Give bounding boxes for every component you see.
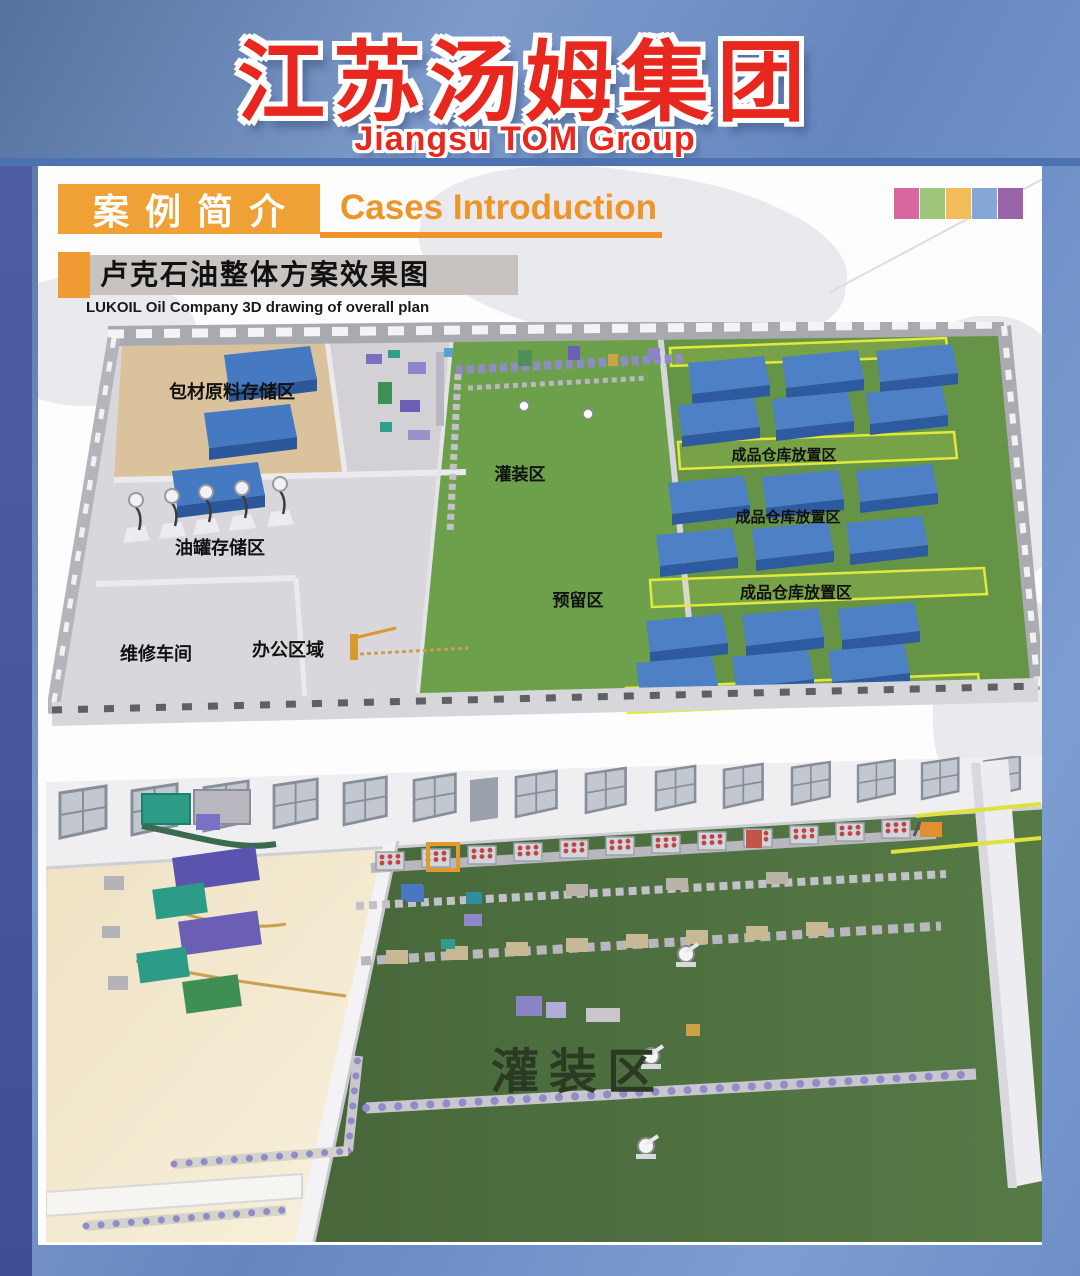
filling-area-render: 灌装区 (46, 756, 1042, 1242)
swatch-purple (998, 188, 1023, 219)
zone-label-filling: 灌装区 (495, 464, 546, 484)
zone-label-maintenance: 维修车间 (120, 643, 192, 664)
swatch-blue (972, 188, 997, 219)
zone-label-office: 办公区域 (252, 639, 324, 660)
zone-label-finished-1: 成品仓库放置区 (731, 446, 836, 464)
title-accent-square (58, 252, 90, 298)
case-title-zh: 卢克石油整体方案效果图 (90, 255, 518, 295)
swatch-orange (946, 188, 971, 219)
back-wall-door (470, 777, 498, 822)
case-title-en: LUKOIL Oil Company 3D drawing of overall… (86, 299, 429, 316)
red-palletizer (746, 830, 762, 848)
zone-label-finished-3: 成品仓库放置区 (740, 583, 852, 602)
left-edge-strip (0, 166, 32, 1276)
content-panel: 案例简介 Cases Introduction 卢克石油整体方案效果图 LUKO… (38, 166, 1042, 1245)
zone-label-finished-2: 成品仓库放置区 (735, 508, 840, 526)
page-subtitle-en: Jiangsu TOM Group (0, 120, 1050, 159)
color-swatch-strip (894, 188, 1026, 219)
cases-banner-en: Cases Introduction (340, 188, 657, 228)
header-divider (0, 158, 1080, 166)
cases-banner-zh: 案例简介 (58, 184, 320, 234)
decorative-diagonal-line (829, 166, 1042, 293)
filling-area-big-label: 灌装区 (491, 1046, 665, 1099)
zone-label-packaging: 包材原料存储区 (169, 381, 295, 402)
swatch-pink (894, 188, 919, 219)
banner-underline (320, 232, 662, 238)
zone-label-reserved: 预留区 (553, 590, 604, 610)
zone-label-oil-tank: 油罐存储区 (175, 537, 265, 558)
overall-plan-render: 包材原料存储区 油罐存储区 维修车间 办公区域 灌装区 预留区 成品仓库放置区 … (48, 322, 1040, 742)
swatch-green (920, 188, 945, 219)
